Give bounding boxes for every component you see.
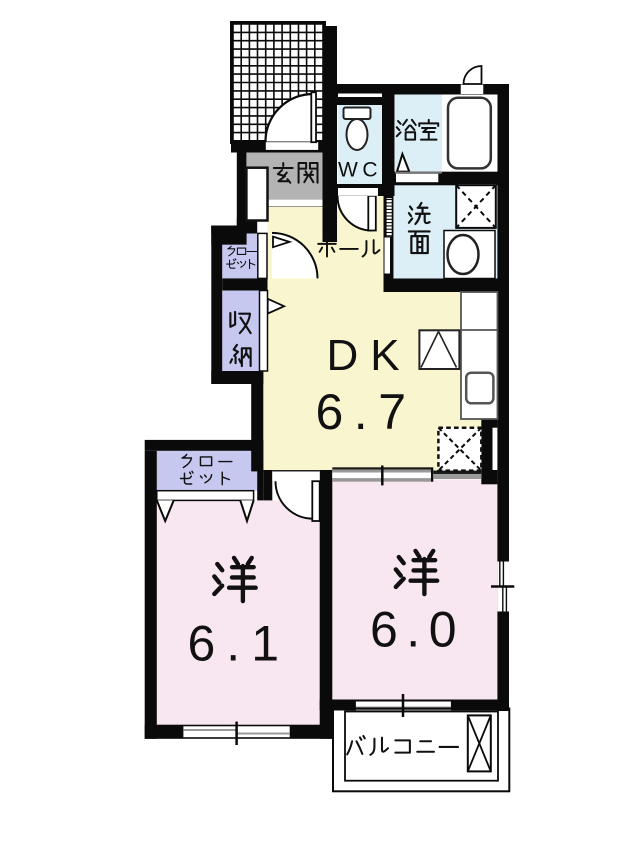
svg-text:WC: WC bbox=[338, 159, 382, 182]
svg-text:6.7: 6.7 bbox=[316, 384, 417, 440]
svg-text:DK: DK bbox=[327, 331, 412, 380]
svg-text:6.0: 6.0 bbox=[370, 601, 465, 657]
svg-text:6.1: 6.1 bbox=[188, 616, 291, 672]
